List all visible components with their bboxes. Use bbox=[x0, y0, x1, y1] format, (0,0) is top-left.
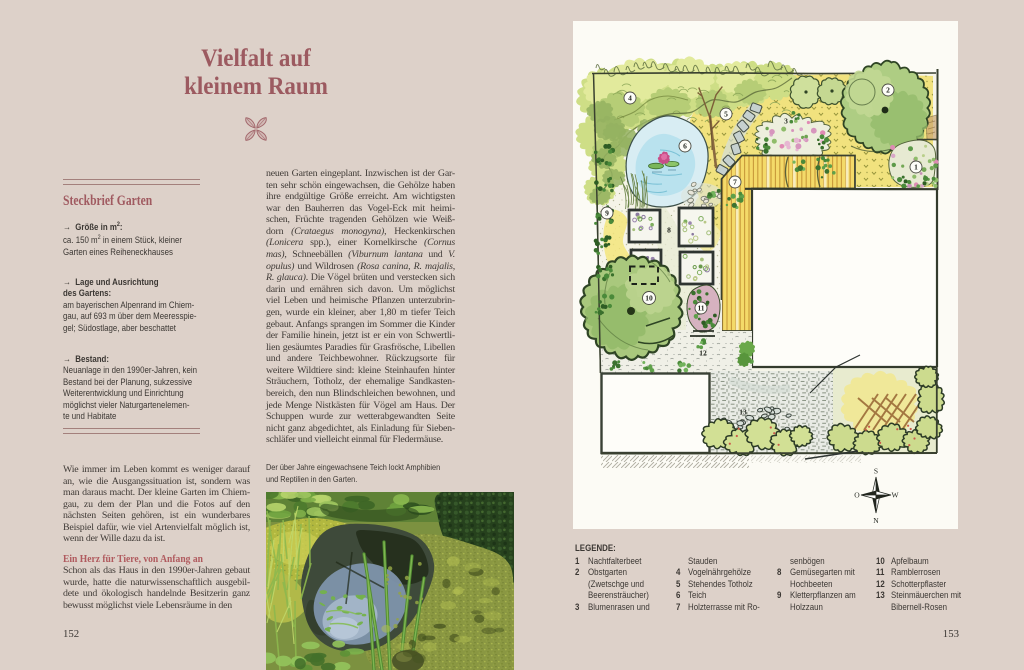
svg-text:10: 10 bbox=[645, 294, 653, 303]
svg-text:8: 8 bbox=[667, 226, 671, 235]
svg-text:O: O bbox=[854, 491, 860, 500]
svg-text:5: 5 bbox=[724, 110, 728, 119]
svg-text:9: 9 bbox=[605, 209, 609, 218]
svg-text:12: 12 bbox=[699, 349, 707, 358]
svg-text:13: 13 bbox=[739, 408, 747, 417]
svg-text:N: N bbox=[873, 516, 879, 525]
svg-text:1: 1 bbox=[914, 163, 918, 172]
svg-text:2: 2 bbox=[886, 86, 890, 95]
svg-text:7: 7 bbox=[733, 178, 737, 187]
svg-text:6: 6 bbox=[683, 142, 687, 151]
svg-text:11: 11 bbox=[697, 304, 704, 313]
svg-text:4: 4 bbox=[628, 94, 632, 103]
svg-text:W: W bbox=[891, 491, 899, 500]
svg-text:3: 3 bbox=[784, 117, 788, 126]
svg-text:S: S bbox=[874, 467, 878, 476]
